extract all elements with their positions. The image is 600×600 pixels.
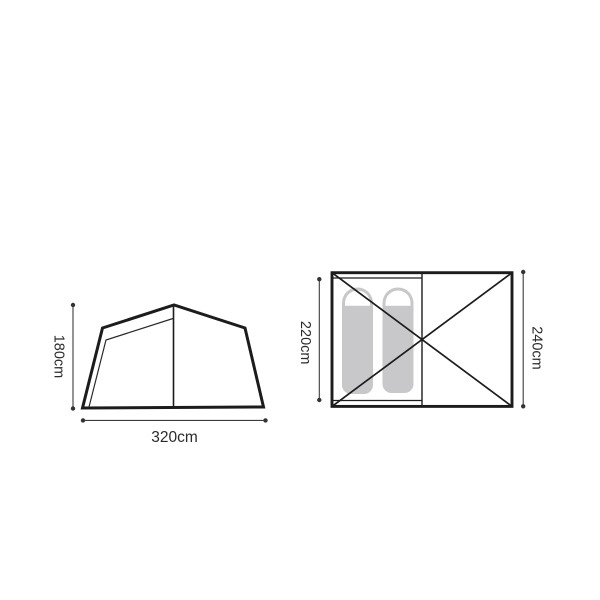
svg-text:320cm: 320cm — [151, 429, 198, 446]
svg-text:180cm: 180cm — [51, 335, 67, 379]
svg-text:220cm: 220cm — [297, 321, 313, 365]
svg-text:240cm: 240cm — [529, 326, 545, 370]
